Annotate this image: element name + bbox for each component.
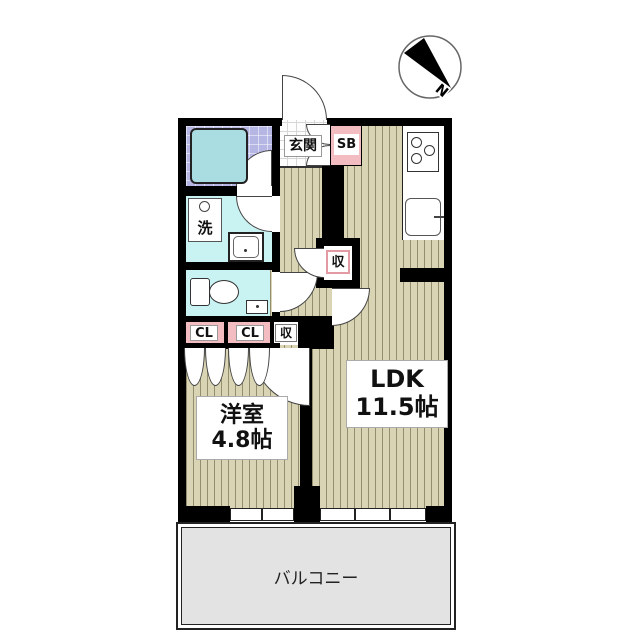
storage-hall-label: 収 (326, 250, 350, 274)
balcony-inner: バルコニー (181, 527, 451, 625)
floorplan-canvas: バルコニー 玄関 SB 洗 CL CL 収 収 洋室 4.8帖 LDK 11.5… (0, 0, 640, 640)
washer-label-text: 洗 (197, 221, 212, 236)
wall (178, 316, 298, 322)
wall (400, 268, 444, 282)
shoebox-label: SB (334, 134, 359, 155)
window-divider (354, 508, 356, 521)
western-room-size: 4.8帖 (212, 428, 273, 453)
stove-burner (411, 153, 422, 164)
balcony: バルコニー (176, 522, 456, 630)
window-divider (261, 508, 263, 521)
closet-2-label-text: CL (241, 327, 259, 340)
wall (270, 320, 274, 345)
toilet-bowl (209, 280, 239, 304)
western-room-label-box: 洋室 4.8帖 (196, 396, 288, 460)
vanity-basin (233, 236, 259, 258)
washer-label: 洗 (194, 218, 216, 238)
doorway-gap (237, 186, 272, 196)
balcony-label: バルコニー (274, 564, 359, 589)
wall (178, 506, 230, 522)
shoebox-label-text: SB (337, 138, 356, 151)
wall (272, 126, 280, 196)
wall (224, 320, 228, 345)
wall (178, 186, 237, 196)
storage-row-label-text: 収 (280, 327, 292, 339)
bathtub (190, 128, 248, 184)
western-room-name: 洋室 (220, 403, 264, 428)
washing-machine-faucet-icon (199, 201, 210, 212)
wall (322, 166, 344, 240)
vanity-faucet-dot (244, 249, 247, 252)
closet-2-label: CL (236, 325, 264, 341)
closet-1-label: CL (190, 325, 218, 341)
doorway-gap (272, 196, 280, 232)
ldk-size: 11.5帖 (355, 394, 438, 422)
genkan-step-line (280, 166, 322, 168)
ldk-name: LDK (370, 366, 424, 394)
wall (426, 506, 452, 522)
stove-burner (424, 145, 435, 156)
closet-1-label-text: CL (195, 327, 213, 340)
genkan-label-text: 玄関 (289, 139, 317, 153)
toilet-tank (190, 278, 210, 306)
ldk-label-box: LDK 11.5帖 (346, 360, 448, 428)
genkan-label: 玄関 (284, 135, 322, 157)
stove-burner (411, 137, 422, 148)
kitchen-faucet-icon (434, 216, 444, 218)
toilet-sink-dot (256, 305, 259, 308)
storage-row-label: 収 (275, 324, 297, 342)
doorway-gap (272, 272, 280, 312)
wall (327, 118, 452, 126)
wall (272, 232, 280, 272)
storage-hall-label-text: 収 (331, 256, 344, 269)
wall (444, 118, 452, 522)
wall (178, 118, 282, 126)
entry-door-arc (282, 75, 327, 120)
window (320, 508, 426, 521)
window-divider (389, 508, 391, 521)
wall (294, 486, 320, 522)
north-compass: N (396, 33, 464, 101)
wall (178, 262, 272, 270)
